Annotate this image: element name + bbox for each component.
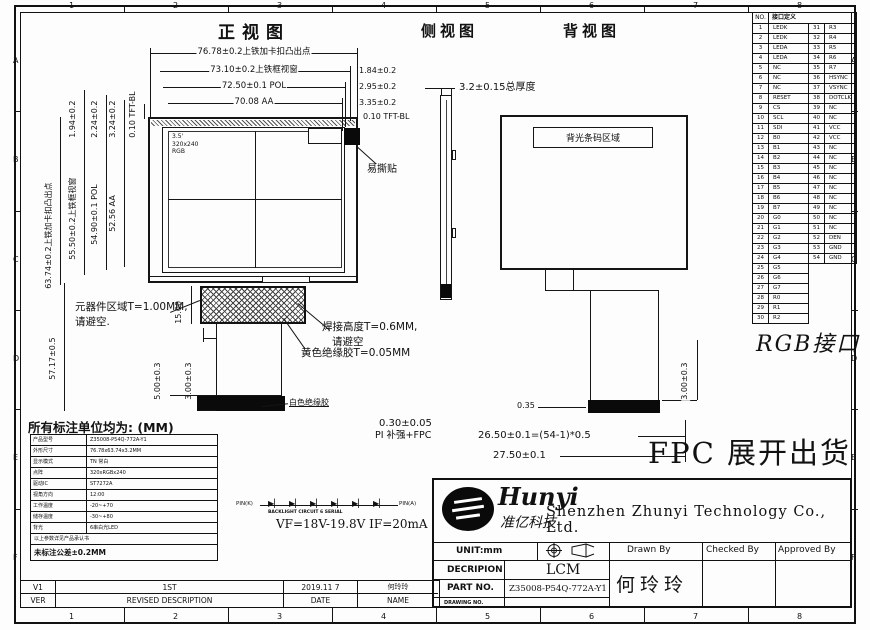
pin-header-no: NO. xyxy=(753,13,769,24)
revision-desc-header: REVISED DESCRIPTION xyxy=(56,594,284,607)
side-profile-midline xyxy=(446,100,447,295)
dim-tail-5: 5.00±0.3 xyxy=(154,362,163,401)
pin-signal: VSYNC xyxy=(825,84,857,94)
border-col-label: 4 xyxy=(381,2,386,10)
units-label: 显示模式 xyxy=(31,457,87,467)
dim-line xyxy=(64,283,65,411)
pin-signal: NC xyxy=(825,184,857,194)
pin-signal: G7 xyxy=(769,284,809,294)
checked-by-label: Checked By xyxy=(706,545,759,555)
pin-signal: NC xyxy=(825,164,857,174)
pin-signal: NC xyxy=(825,214,857,224)
side-view-title: 侧视图 xyxy=(421,20,478,41)
unit-label: UNIT:mm xyxy=(456,546,502,556)
pin-number: 48 xyxy=(809,194,825,204)
units-row: 产品型号Z35008-P54Q-772A-Y1 xyxy=(30,435,218,446)
revision-name-header: NAME xyxy=(358,594,438,607)
border-col-label: 2 xyxy=(173,2,178,10)
dim-right-4: 0.10 TFT-BL xyxy=(362,113,410,122)
tail-line xyxy=(590,290,591,400)
pin-number: 20 xyxy=(753,214,769,224)
border-col-label: 1 xyxy=(69,613,74,621)
line xyxy=(572,544,586,557)
dim-left-main-1: 63.74±0.2上铁加卡扣凸出点 xyxy=(45,181,54,289)
pin-signal: GND xyxy=(825,254,857,264)
pin-row: 13B143NC xyxy=(752,144,857,154)
pin-number: 22 xyxy=(753,234,769,244)
units-label: 工作温度 xyxy=(31,501,87,511)
tb-line xyxy=(775,542,776,606)
pin-signal: NC xyxy=(769,74,809,84)
screen-marking: 3.5' 320x240 RGB xyxy=(172,133,198,156)
pin-row: 19B749NC xyxy=(752,204,857,214)
line xyxy=(454,497,482,504)
pin-row: 1LEDK31R3 xyxy=(752,24,857,34)
units-value: TN 常白 xyxy=(87,457,217,467)
dim-back-2750: 27.50±0.1 xyxy=(492,450,547,461)
border-col-label: 6 xyxy=(589,613,594,621)
pin-number: 25 xyxy=(753,264,769,274)
pin-row: 15B345NC xyxy=(752,164,857,174)
ext-line xyxy=(342,98,343,131)
led-diode-icon: ▶▏ xyxy=(289,500,301,508)
pin-number: 49 xyxy=(809,204,825,214)
pin-signal: NC xyxy=(769,64,809,74)
approved-by-label: Approved By xyxy=(778,545,836,555)
revision-ver: V1 xyxy=(21,581,56,594)
solder-height-note: 焊接高度T=0.6MM, 请避空 xyxy=(322,320,417,349)
pin-row: 22G252DEN xyxy=(752,234,857,244)
screen-marking-size: 3.5' xyxy=(172,133,198,141)
units-row: 未标注公差±0.2MM xyxy=(30,545,218,561)
pin-row: 14B244NC xyxy=(752,154,857,164)
border-tick xyxy=(124,5,125,12)
dim-top-1: 76.78±0.2上铁加卡扣凸出点 xyxy=(197,48,312,57)
pin-row: 12B042VCC xyxy=(752,134,857,144)
pin-number: 10 xyxy=(753,114,769,124)
pin-number: 28 xyxy=(753,294,769,304)
drawn-by-signature: 何玲玲 xyxy=(616,570,688,597)
side-bump xyxy=(452,150,456,160)
units-label: 视角方向 xyxy=(31,490,87,500)
border-col-label: 5 xyxy=(485,613,490,621)
border-col-label: 6 xyxy=(589,2,594,10)
pin-signal: R1 xyxy=(769,304,809,314)
ext-line xyxy=(203,328,204,342)
pin-signal: NC xyxy=(769,84,809,94)
pin-signal: LEDK xyxy=(769,34,809,44)
border-col-label: 8 xyxy=(797,613,802,621)
units-row: 外形尺寸76.78x63.74x3.2MM xyxy=(30,446,218,457)
units-row: 驱动ICST7272A xyxy=(30,479,218,490)
pin-row: 18B648NC xyxy=(752,194,857,204)
border-tick xyxy=(748,608,749,624)
back-connector-bar xyxy=(588,400,660,413)
pin-signal: HSYNC xyxy=(825,74,857,84)
pin-signal: B0 xyxy=(769,134,809,144)
dim-left-main-3: 54.90±0.1 POL xyxy=(91,183,100,245)
units-row: 储存温度-30~+80 xyxy=(30,512,218,523)
pin-signal: G4 xyxy=(769,254,809,264)
decription-label: DECRIPION xyxy=(447,565,503,575)
backlight-pin-a: PIN(A) xyxy=(399,501,416,507)
tail-line xyxy=(658,290,659,400)
pin-signal: R5 xyxy=(825,44,857,54)
border-tick xyxy=(332,5,333,12)
border-col-label: 1 xyxy=(69,2,74,10)
pin-row: 27G7 xyxy=(752,284,809,294)
pin-number: 29 xyxy=(753,304,769,314)
pin-number: 15 xyxy=(753,164,769,174)
backlight-pin-k: PIN(K) xyxy=(236,501,253,507)
pin-row: 16B446NC xyxy=(752,174,857,184)
screen-marking-interface: RGB xyxy=(172,148,198,156)
pin-number: 6 xyxy=(753,74,769,84)
pin-signal: G1 xyxy=(769,224,809,234)
dim-right-2: 2.95±0.2 xyxy=(358,83,397,92)
pin-number: 43 xyxy=(809,144,825,154)
border-col-label: 2 xyxy=(173,613,178,621)
pin-row: 26G6 xyxy=(752,274,809,284)
line xyxy=(586,554,594,557)
pin-number: 18 xyxy=(753,194,769,204)
pin-number: 7 xyxy=(753,84,769,94)
pin-signal: B2 xyxy=(769,154,809,164)
screen-cross-horizontal xyxy=(168,199,342,200)
led-diode-icon: ▶▏ xyxy=(373,500,385,508)
dim-back-2650: 26.50±0.1=(54-1)*0.5 xyxy=(477,430,592,441)
pin-signal: B4 xyxy=(769,174,809,184)
pin-signal: B1 xyxy=(769,144,809,154)
border-col-label: 5 xyxy=(485,2,490,10)
pin-number: 42 xyxy=(809,134,825,144)
bezel-notch xyxy=(308,128,342,144)
tear-sticker-label: 易撕贴 xyxy=(366,164,398,175)
border-row-label: A xyxy=(13,57,18,65)
border-row-label: F xyxy=(13,554,18,562)
border-row-label: B xyxy=(13,156,19,164)
pin-number: 21 xyxy=(753,224,769,234)
pin-row: 17B547NC xyxy=(752,184,857,194)
units-table: 产品型号Z35008-P54Q-772A-Y1外形尺寸76.78x63.74x3… xyxy=(30,434,218,561)
leader-line xyxy=(170,395,216,396)
ext-line xyxy=(441,88,442,95)
barcode-area-label: 背光条码区域 xyxy=(566,131,620,144)
pin-number: 46 xyxy=(809,174,825,184)
tail-line xyxy=(573,270,574,290)
dim-line xyxy=(697,340,698,400)
pin-row: 20G050NC xyxy=(752,214,857,224)
dim-thickness: 3.2±0.15总厚度 xyxy=(458,82,537,93)
pin-signal: G5 xyxy=(769,264,809,274)
pin-number: 14 xyxy=(753,154,769,164)
revision-desc: 1ST xyxy=(56,581,284,594)
fpc-tail-outline xyxy=(216,323,282,396)
pin-number: 13 xyxy=(753,144,769,154)
dim-left-small-1: 1.94±0.2 xyxy=(69,100,78,139)
border-tick xyxy=(14,509,20,510)
border-col-label: 4 xyxy=(381,613,386,621)
dim-right-1: 1.84±0.2 xyxy=(358,67,397,76)
pin-signal: NC xyxy=(825,224,857,234)
tb-line xyxy=(434,597,609,598)
pin-signal: NC xyxy=(825,174,857,184)
pin-number: 53 xyxy=(809,244,825,254)
company-name: Shenzhen Zhunyi Technology Co., Ltd. xyxy=(546,504,850,536)
pin-signal: G2 xyxy=(769,234,809,244)
ext-line xyxy=(451,88,452,95)
line xyxy=(456,513,480,519)
revision-date: 2019.11 7 xyxy=(284,581,358,594)
units-row: 背光6串白光LED xyxy=(30,523,218,534)
title-block: Hunyi 准亿科技 Shenzhen Zhunyi Technology Co… xyxy=(432,478,852,608)
pin-number: 23 xyxy=(753,244,769,254)
pin-signal: NC xyxy=(825,144,857,154)
decription-value: LCM xyxy=(546,562,580,578)
pin-number: 40 xyxy=(809,114,825,124)
component-area-note: 元器件区域T=1.00MM, 请避空. xyxy=(75,300,188,329)
line xyxy=(452,505,484,512)
pin-table-header: NO. 接口定义 xyxy=(752,12,857,24)
dim-left-small-3: 3.24±0.2 xyxy=(109,100,118,139)
units-label: 驱动IC xyxy=(31,479,87,489)
pin-number: 19 xyxy=(753,204,769,214)
pin-signal: LEDA xyxy=(769,44,809,54)
dim-left-small-2: 2.24±0.2 xyxy=(91,100,100,139)
pin-signal: LEDK xyxy=(769,24,809,34)
screen-marking-resolution: 320x240 xyxy=(172,141,198,149)
tb-line xyxy=(609,542,610,606)
pin-signal: NC xyxy=(825,204,857,214)
border-tick xyxy=(748,5,749,12)
pin-row: 5NC35R7 xyxy=(752,64,857,74)
pin-row: 11SDI41VCC xyxy=(752,124,857,134)
border-row-label: E xyxy=(13,454,18,462)
pin-table: NO. 接口定义 1LEDK31R32LEDK32R43LEDA33R54LED… xyxy=(752,12,857,324)
pin-number: 35 xyxy=(809,64,825,74)
units-label: 产品型号 xyxy=(31,435,87,445)
engineering-drawing-sheet: 1122334455667788AABBCCDDEEFF 正视图 3.5' 32… xyxy=(0,0,870,630)
tb-line xyxy=(504,560,505,606)
units-row: 工作温度-20~+70 xyxy=(30,501,218,512)
projection-symbol-icon xyxy=(546,543,598,562)
tb-line xyxy=(434,579,609,580)
border-tick xyxy=(14,111,20,112)
ext-line xyxy=(350,66,351,121)
border-col-label: 7 xyxy=(693,2,698,10)
pin-row: 4LEDA34R6 xyxy=(752,54,857,64)
backlight-caption: BACKLIGHT CIRCUIT 6 SERIAL xyxy=(268,510,343,515)
pin-number: 54 xyxy=(809,254,825,264)
pin-number: 38 xyxy=(809,94,825,104)
pin-signal: NC xyxy=(825,104,857,114)
leader-line xyxy=(425,88,455,89)
border-tick xyxy=(540,608,541,624)
pin-signal: RESET xyxy=(769,94,809,104)
pin-signal: SCL xyxy=(769,114,809,124)
border-tick xyxy=(14,310,20,311)
border-tick xyxy=(14,211,20,212)
component-area-note-line2: 请避空. xyxy=(75,315,188,330)
tail-line xyxy=(545,270,546,290)
yellow-glue-note: 黄色绝缘胶T=0.05MM xyxy=(300,348,411,360)
revision-header-row: VER REVISED DESCRIPTION DATE NAME xyxy=(21,594,439,607)
units-value: 12:00 xyxy=(87,490,217,500)
border-tick xyxy=(124,608,125,624)
led-diode-icon: ▶▏ xyxy=(352,500,364,508)
units-table-rows: 产品型号Z35008-P54Q-772A-Y1外形尺寸76.78x63.74x3… xyxy=(30,435,218,561)
border-tick xyxy=(540,5,541,12)
dim-left-small-4: 0.10 TFT-BL xyxy=(129,90,138,138)
pin-row: 9CS39NC xyxy=(752,104,857,114)
dim-left-main-4: 52.56 AA xyxy=(109,194,118,233)
led-diode-icon: ▶▏ xyxy=(310,500,322,508)
tail-line xyxy=(545,290,658,291)
pin-number: 26 xyxy=(753,274,769,284)
pin-row: 10SCL40NC xyxy=(752,114,857,124)
border-tick xyxy=(436,5,437,12)
front-panel-adhesive-strip xyxy=(151,120,355,126)
units-row: 视角方向12:00 xyxy=(30,490,218,501)
pin-number: 11 xyxy=(753,124,769,134)
pin-signal: G3 xyxy=(769,244,809,254)
tb-line xyxy=(537,542,538,560)
dim-back-035: 0.35 xyxy=(516,402,536,411)
pin-signal: SDI xyxy=(769,124,809,134)
border-tick xyxy=(228,5,229,12)
units-value: 320xRGBx240 xyxy=(87,468,217,478)
units-row: 显示模式TN 常白 xyxy=(30,457,218,468)
side-bump xyxy=(452,228,456,238)
units-value: ST7272A xyxy=(87,479,217,489)
pin-signal: R0 xyxy=(769,294,809,304)
pin-signal: R3 xyxy=(825,24,857,34)
pin-number: 3 xyxy=(753,44,769,54)
pin-number: 44 xyxy=(809,154,825,164)
pin-signal: DEN xyxy=(825,234,857,244)
border-col-label: 3 xyxy=(277,2,282,10)
pin-table-rows: 1LEDK31R32LEDK32R43LEDA33R54LEDA34R65NC3… xyxy=(752,24,857,324)
pin-number: 12 xyxy=(753,134,769,144)
pin-signal: NC xyxy=(825,194,857,204)
pin-number: 39 xyxy=(809,104,825,114)
pin-signal: R2 xyxy=(769,314,809,324)
pin-number: 9 xyxy=(753,104,769,114)
pin-row: 2LEDK32R4 xyxy=(752,34,857,44)
dim-top-3: 72.50±0.1 POL xyxy=(221,82,287,91)
fpc-connector-bar xyxy=(197,396,285,411)
pin-number: 51 xyxy=(809,224,825,234)
white-glue-note: 白色绝缘胶 xyxy=(288,399,330,408)
pin-number: 30 xyxy=(753,314,769,324)
pin-row: 24G454GND xyxy=(752,254,857,264)
pin-row: 29R1 xyxy=(752,304,809,314)
pin-signal: B5 xyxy=(769,184,809,194)
revision-ver-header: VER xyxy=(21,594,56,607)
pin-number: 17 xyxy=(753,184,769,194)
pin-signal: B6 xyxy=(769,194,809,204)
revision-table: V1 1ST 2019.11 7 何玲玲 VER REVISED DESCRIP… xyxy=(20,580,440,608)
units-label: 背光 xyxy=(31,523,87,533)
ext-line xyxy=(662,400,697,401)
border-tick xyxy=(852,409,858,410)
pin-row: 23G353GND xyxy=(752,244,857,254)
fpc-ship-note: FPC 展开出货 xyxy=(648,430,851,472)
pin-row: 8RESET38DOTCLK xyxy=(752,94,857,104)
pin-number: 37 xyxy=(809,84,825,94)
pin-number: 32 xyxy=(809,34,825,44)
tb-line xyxy=(434,542,850,543)
dim-line xyxy=(84,90,85,275)
units-value: -20~+70 xyxy=(87,501,217,511)
led-diode-icon: ▶▏ xyxy=(268,500,280,508)
pin-signal: LEDA xyxy=(769,54,809,64)
dim-back-300: 3.00±0.3 xyxy=(681,362,690,401)
pin-signal: NC xyxy=(825,114,857,124)
tb-line xyxy=(702,542,703,606)
back-view-title: 背视图 xyxy=(563,20,620,41)
dim-line xyxy=(144,104,145,119)
pin-row: 7NC37VSYNC xyxy=(752,84,857,94)
pin-number: 47 xyxy=(809,184,825,194)
pin-row: 28R0 xyxy=(752,294,809,304)
dim-total-left: 57.17±0.5 xyxy=(49,336,58,380)
tb-line xyxy=(434,560,850,561)
border-col-label: 7 xyxy=(693,613,698,621)
line xyxy=(586,544,594,547)
pin-signal: DOTCLK xyxy=(825,94,857,104)
front-bottom-tab xyxy=(262,276,310,283)
dim-line xyxy=(106,95,107,270)
pin-signal: G6 xyxy=(769,274,809,284)
units-value: 以上参数详见产品承认书 xyxy=(31,534,217,544)
border-row-label: C xyxy=(13,256,19,264)
ext-line xyxy=(150,48,151,117)
pin-number: 50 xyxy=(809,214,825,224)
border-tick xyxy=(14,409,20,410)
pin-number: 52 xyxy=(809,234,825,244)
tear-sticker-square xyxy=(344,128,360,145)
pin-number: 16 xyxy=(753,174,769,184)
pin-signal: CS xyxy=(769,104,809,114)
revision-name: 何玲玲 xyxy=(358,581,438,594)
drawing-no-label: DRAWING NO. xyxy=(444,600,483,606)
pin-row: 25G5 xyxy=(752,264,809,274)
pin-row: 3LEDA33R5 xyxy=(752,44,857,54)
units-label: 储存温度 xyxy=(31,512,87,522)
pin-signal: GND xyxy=(825,244,857,254)
pin-number: 4 xyxy=(753,54,769,64)
dim-line xyxy=(124,100,125,267)
units-row: 点阵320xRGBx240 xyxy=(30,468,218,479)
front-bottom-line xyxy=(150,276,356,277)
pin-header-def: 接口定义 xyxy=(769,13,857,24)
rgb-interface-title: RGB接口 xyxy=(756,326,860,358)
units-value: 76.78x63.74x3.2MM xyxy=(87,446,217,456)
border-row-label: D xyxy=(13,355,19,363)
pin-signal: B3 xyxy=(769,164,809,174)
pin-signal: R7 xyxy=(825,64,857,74)
pin-number: 33 xyxy=(809,44,825,54)
dim-top-4: 70.08 AA xyxy=(234,98,275,107)
dim-left-main-2: 55.50±0.2上铁框视窗 xyxy=(69,176,78,260)
units-row: 以上参数详见产品承认书 xyxy=(30,534,218,545)
dim-line xyxy=(60,117,61,285)
revision-row: V1 1ST 2019.11 7 何玲玲 xyxy=(21,581,439,594)
pin-number: 24 xyxy=(753,254,769,264)
pin-number: 31 xyxy=(809,24,825,34)
revision-date-header: DATE xyxy=(284,594,358,607)
